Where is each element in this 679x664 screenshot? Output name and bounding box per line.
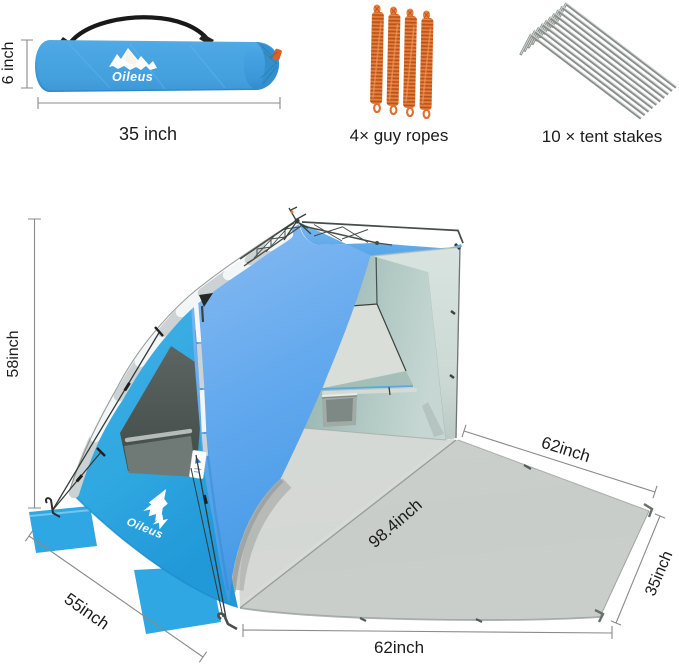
svg-text:62inch: 62inch [374, 638, 424, 657]
svg-text:10 × tent stakes: 10 × tent stakes [542, 127, 663, 146]
svg-text:35 inch: 35 inch [119, 124, 177, 144]
svg-text:Oileus: Oileus [112, 70, 153, 84]
svg-text:4× guy ropes: 4× guy ropes [350, 126, 449, 145]
svg-text:6 inch: 6 inch [0, 42, 17, 85]
svg-text:58inch: 58inch [5, 330, 22, 377]
